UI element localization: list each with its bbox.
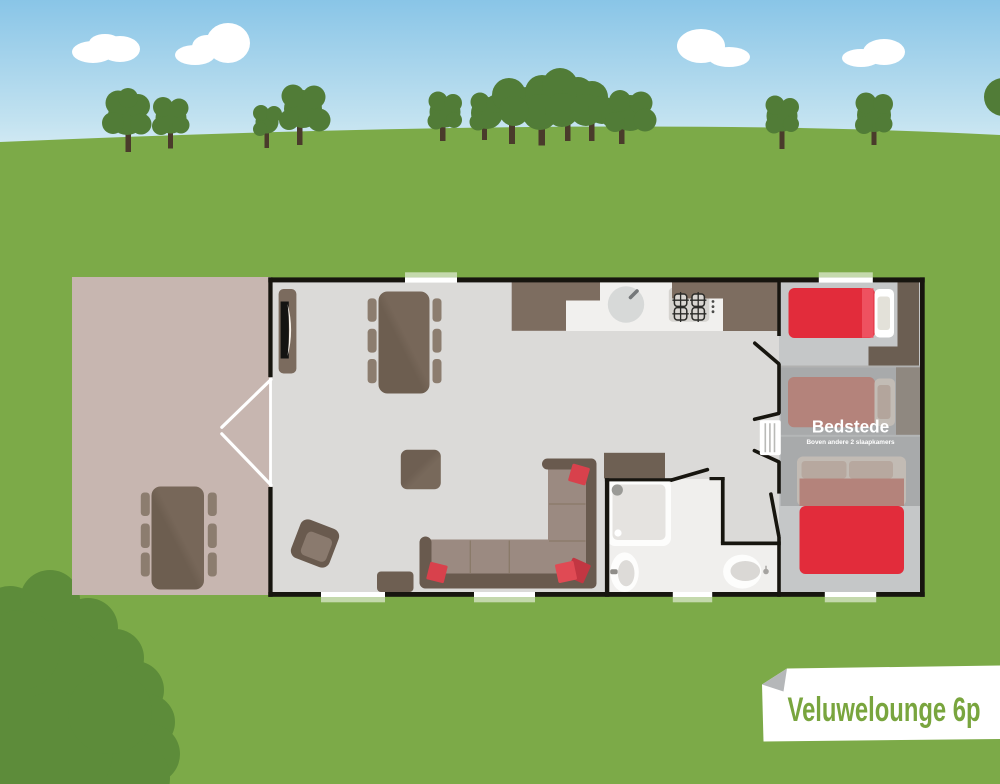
svg-text:Veluwelounge 6p: Veluwelounge 6p [788,691,981,729]
svg-text:Bedstede: Bedstede [812,417,889,437]
svg-text:Boven andere 2 slaapkamers: Boven andere 2 slaapkamers [806,439,895,446]
